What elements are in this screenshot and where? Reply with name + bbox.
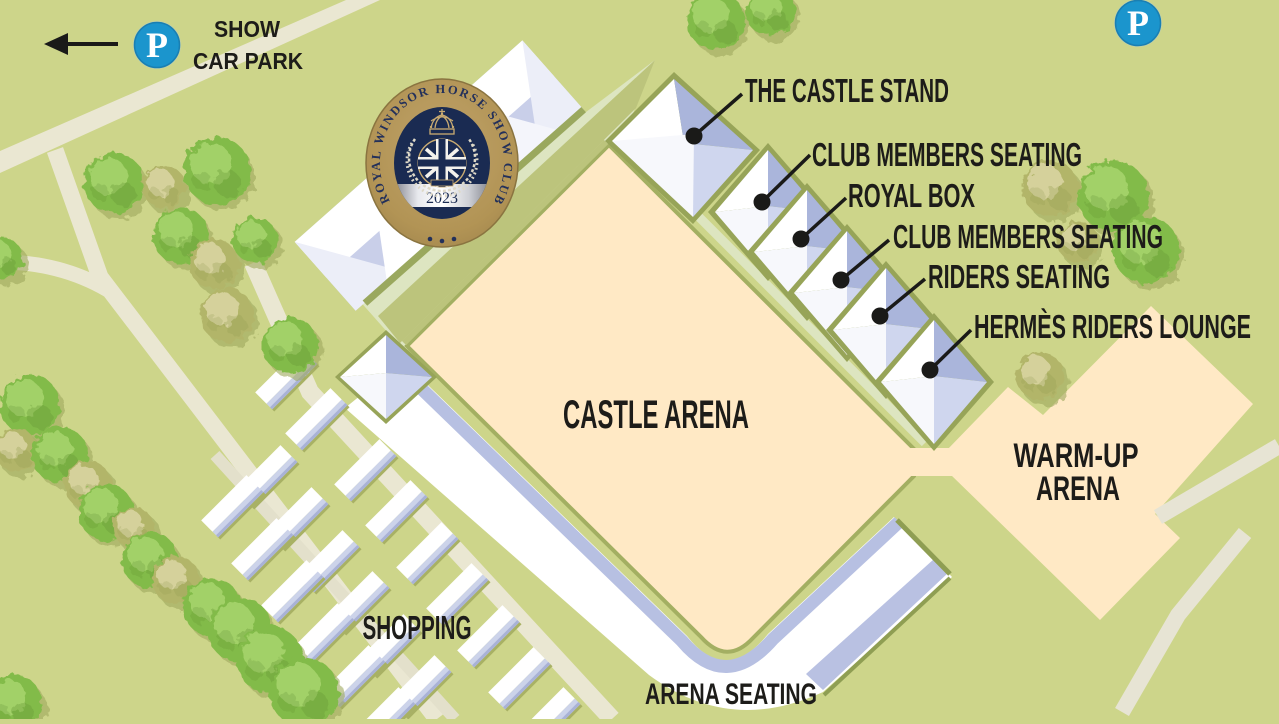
svg-text:RIDERS SEATING: RIDERS SEATING	[928, 258, 1110, 295]
svg-text:2023: 2023	[426, 190, 458, 207]
svg-text:SHOW: SHOW	[214, 16, 280, 42]
svg-text:SHOPPING: SHOPPING	[363, 609, 472, 646]
svg-text:CLUB MEMBERS SEATING: CLUB MEMBERS SEATING	[812, 136, 1082, 173]
svg-text:HERMÈS RIDERS LOUNGE: HERMÈS RIDERS LOUNGE	[974, 308, 1251, 345]
svg-text:THE CASTLE STAND: THE CASTLE STAND	[745, 72, 949, 109]
svg-text:CASTLE ARENA: CASTLE ARENA	[563, 393, 749, 437]
svg-text:ROYAL BOX: ROYAL BOX	[848, 177, 975, 214]
svg-text:P: P	[1127, 3, 1149, 43]
svg-text:ARENA: ARENA	[1036, 470, 1120, 508]
svg-text:P: P	[146, 25, 168, 65]
svg-text:CAR PARK: CAR PARK	[193, 48, 303, 74]
svg-text:ARENA SEATING: ARENA SEATING	[645, 678, 817, 711]
svg-text:CLUB MEMBERS SEATING: CLUB MEMBERS SEATING	[893, 218, 1163, 255]
